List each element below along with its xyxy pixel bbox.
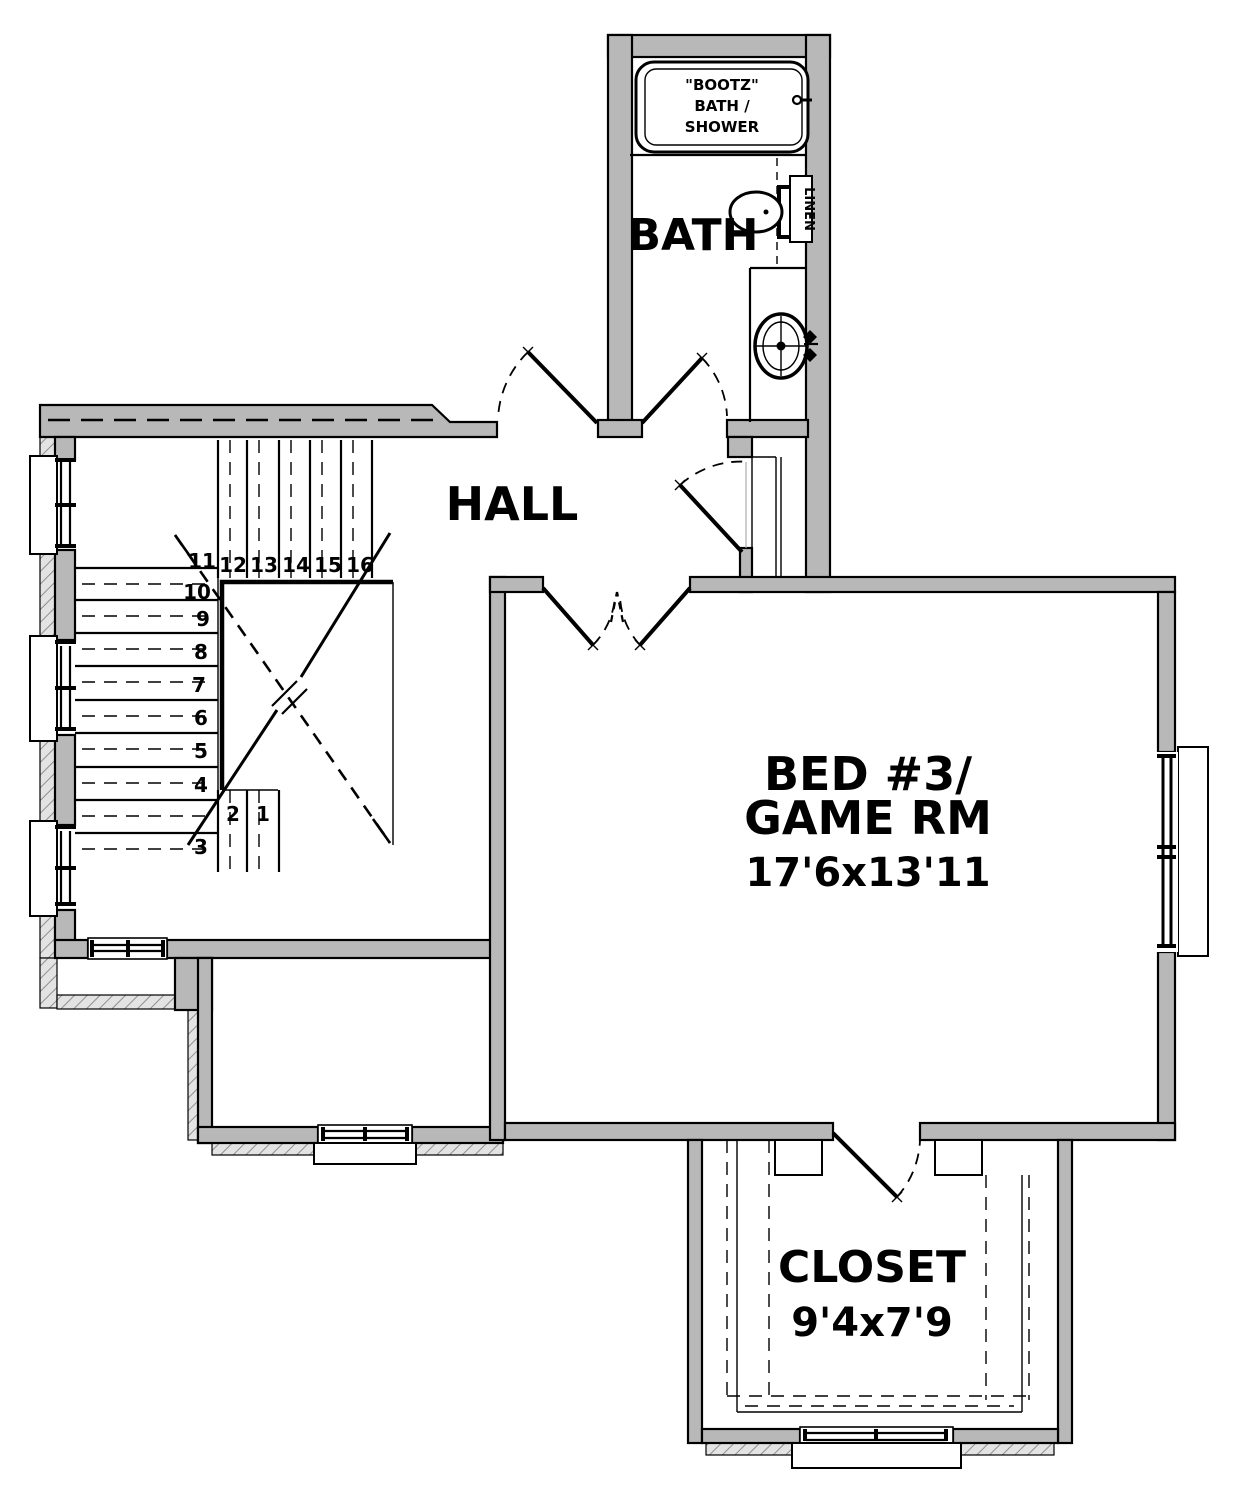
window — [30, 456, 76, 554]
linen-cabinet: LINEN — [790, 176, 816, 242]
door-swing — [498, 347, 597, 423]
wall-segment — [167, 940, 503, 958]
staircase: 1 2 3 4 5 6 7 8 9 10 11 12 13 14 15 16 — [75, 440, 393, 872]
tub-label: "BOOTZ" BATH / SHOWER — [685, 76, 760, 136]
stair-number: 8 — [194, 640, 208, 664]
room-labels: BATH HALL BED #3/ GAME RM 17'6x13'11 CLO… — [446, 76, 992, 1346]
wall-segment — [55, 735, 75, 825]
wall-segment — [608, 35, 830, 57]
wall-segment — [55, 940, 88, 958]
linen-label: LINEN — [801, 187, 816, 231]
floor-plan-page: 1 2 3 4 5 6 7 8 9 10 11 12 13 14 15 16 — [0, 0, 1243, 1500]
stair-number: 14 — [282, 553, 310, 577]
stair-number: 6 — [194, 706, 208, 730]
stair-number: 5 — [194, 739, 208, 763]
door-swing — [642, 353, 727, 423]
wall-segment — [1158, 592, 1175, 752]
wall-segment — [198, 958, 212, 1143]
wall-segment — [920, 1123, 1175, 1140]
window — [30, 636, 76, 741]
wall-segment — [55, 550, 75, 640]
stair-number: 2 — [226, 802, 240, 826]
wall-segment — [505, 1123, 833, 1140]
wall-segment — [490, 577, 543, 592]
stair-number: 11 — [188, 549, 216, 573]
floor-plan-drawing: 1 2 3 4 5 6 7 8 9 10 11 12 13 14 15 16 — [0, 0, 1243, 1500]
wall-segment — [806, 35, 830, 592]
wall-segment — [1158, 952, 1175, 1140]
stair-number: 9 — [196, 607, 210, 631]
window — [1156, 747, 1208, 956]
bath-label: BATH — [627, 210, 758, 261]
stair-number: 1 — [256, 802, 270, 826]
svg-text:"BOOTZ": "BOOTZ" — [685, 76, 759, 94]
wall-segment — [598, 420, 642, 437]
wall-segment — [490, 577, 505, 1140]
chase — [752, 457, 781, 577]
stair-number: 15 — [314, 553, 342, 577]
svg-text:SHOWER: SHOWER — [685, 118, 760, 136]
wall-segment — [1058, 1140, 1072, 1443]
stair-number: 16 — [346, 553, 374, 577]
stair-number: 10 — [183, 580, 211, 604]
stair-number: 3 — [194, 835, 208, 859]
wall-segment — [702, 1429, 800, 1443]
hall-label: HALL — [446, 477, 579, 531]
closet-label: CLOSET — [778, 1242, 966, 1293]
window — [88, 938, 167, 959]
walls — [40, 35, 1175, 1443]
wall-segment — [198, 1127, 318, 1143]
stair-number: 4 — [194, 773, 208, 797]
stair-number: 13 — [250, 553, 278, 577]
double-door-swing — [543, 588, 690, 650]
bedroom-dimensions: 17'6x13'11 — [745, 850, 990, 896]
closet-jamb — [935, 1140, 982, 1175]
svg-text:BATH /: BATH / — [694, 97, 750, 115]
door-swing — [833, 1133, 920, 1202]
window — [792, 1427, 961, 1468]
closet-jamb — [775, 1140, 822, 1175]
wall-segment — [690, 577, 1175, 592]
stair-number: 7 — [192, 673, 206, 697]
bedroom-label-line2: GAME RM — [744, 791, 992, 845]
wall-segment — [953, 1429, 1058, 1443]
wall-segment — [727, 420, 808, 437]
door-swing — [675, 462, 750, 552]
stair-number: 12 — [219, 553, 247, 577]
window — [314, 1125, 416, 1164]
wall-segment — [688, 1140, 702, 1443]
wall-segment — [728, 437, 752, 457]
window — [30, 821, 76, 916]
closet-dimensions: 9'4x7'9 — [791, 1300, 953, 1346]
